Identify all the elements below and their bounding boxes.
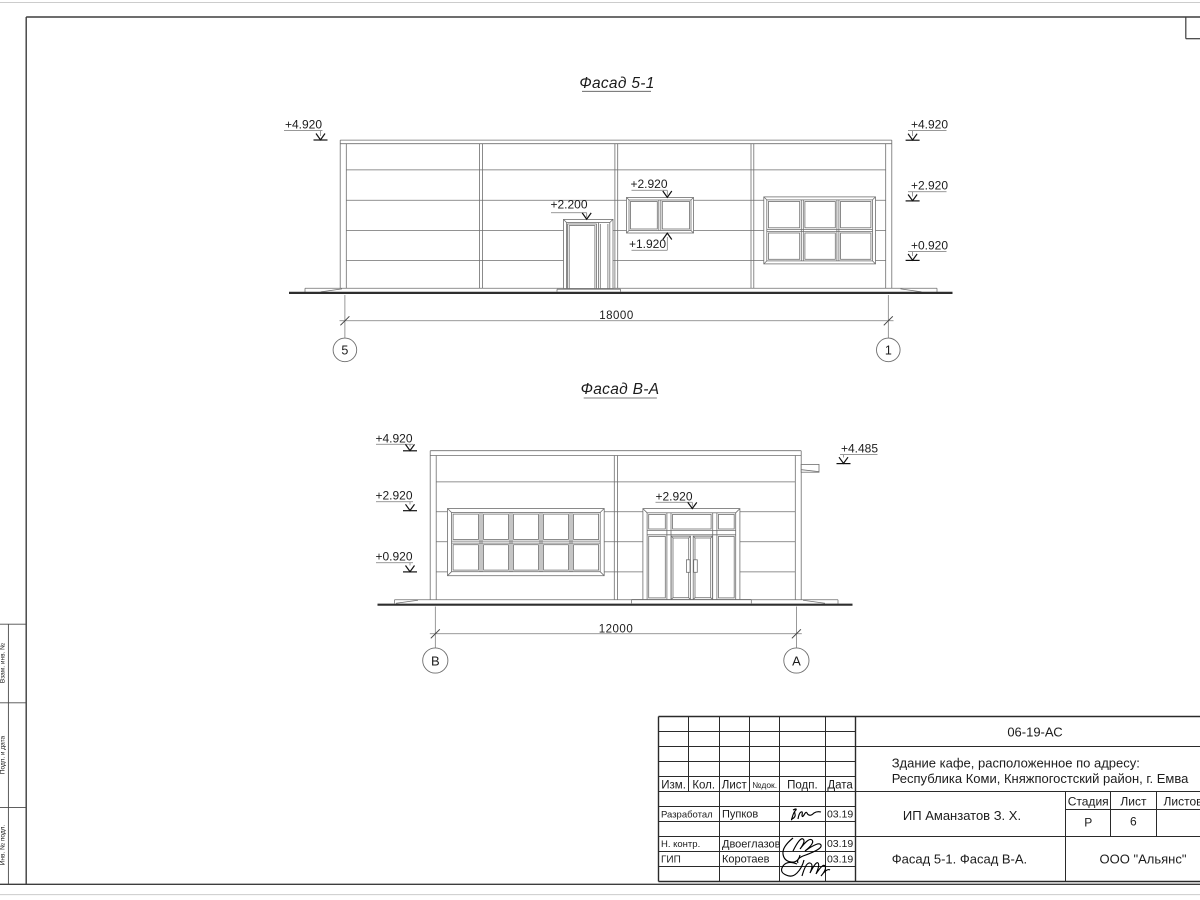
svg-text:5: 5 bbox=[341, 343, 348, 357]
svg-text:12000: 12000 bbox=[599, 623, 633, 635]
svg-text:Подп. и дата: Подп. и дата bbox=[0, 735, 7, 774]
svg-text:18000: 18000 bbox=[599, 310, 633, 322]
svg-text:Двоеглазов: Двоеглазов bbox=[722, 838, 781, 850]
svg-text:03.19: 03.19 bbox=[827, 853, 853, 865]
svg-text:Лист: Лист bbox=[1120, 795, 1147, 809]
svg-text:Дата: Дата bbox=[827, 780, 853, 792]
svg-text:Коротаев: Коротаев bbox=[722, 854, 770, 866]
svg-text:+0.920: +0.920 bbox=[375, 550, 412, 564]
svg-text:Изм.: Изм. bbox=[661, 780, 686, 792]
svg-text:Фасад 5-1. Фасад В-А.: Фасад 5-1. Фасад В-А. bbox=[892, 852, 1027, 867]
svg-text:№док.: №док. bbox=[752, 780, 777, 790]
svg-text:ООО "Альянс": ООО "Альянс" bbox=[1100, 852, 1187, 867]
svg-text:+4.920: +4.920 bbox=[375, 431, 412, 445]
svg-text:Здание кафе, расположенное по: Здание кафе, расположенное по адресу: bbox=[892, 756, 1140, 771]
svg-text:ИП Аманзатов З. Х.: ИП Аманзатов З. Х. bbox=[903, 808, 1021, 823]
svg-text:Фасад 5-1: Фасад 5-1 bbox=[579, 75, 654, 92]
svg-text:Кол.: Кол. bbox=[692, 780, 715, 792]
svg-text:Р: Р bbox=[1084, 816, 1092, 830]
svg-text:+0.920: +0.920 bbox=[911, 239, 948, 253]
svg-text:Взам. инв. №: Взам. инв. № bbox=[0, 643, 7, 683]
svg-text:+2.920: +2.920 bbox=[630, 177, 667, 191]
svg-text:Фасад В-А: Фасад В-А bbox=[581, 381, 660, 398]
svg-text:Пупков: Пупков bbox=[722, 809, 758, 821]
svg-text:Подп.: Подп. bbox=[787, 780, 818, 792]
svg-text:Инв. № подл.: Инв. № подл. bbox=[0, 825, 7, 866]
svg-text:6: 6 bbox=[1130, 815, 1137, 829]
svg-text:Разработал: Разработал bbox=[661, 809, 713, 820]
svg-text:+4.920: +4.920 bbox=[911, 118, 948, 132]
svg-text:1: 1 bbox=[885, 343, 892, 357]
svg-text:03.19: 03.19 bbox=[827, 838, 853, 850]
svg-text:Листов: Листов bbox=[1164, 795, 1200, 809]
svg-text:ГИП: ГИП bbox=[661, 854, 681, 865]
svg-text:Н. контр.: Н. контр. bbox=[661, 839, 700, 850]
svg-text:Республика Коми, Княжпогостски: Республика Коми, Княжпогостский район, г… bbox=[892, 771, 1189, 786]
svg-text:А: А bbox=[792, 653, 801, 668]
svg-text:+1.920: +1.920 bbox=[629, 237, 666, 251]
svg-text:+2.920: +2.920 bbox=[655, 489, 692, 503]
svg-text:+2.920: +2.920 bbox=[911, 179, 948, 193]
svg-text:+4.920: +4.920 bbox=[285, 118, 322, 132]
svg-text:+4.485: +4.485 bbox=[841, 442, 878, 456]
svg-text:Лист: Лист bbox=[722, 780, 748, 792]
svg-text:В: В bbox=[431, 653, 440, 668]
svg-text:+2.200: +2.200 bbox=[550, 198, 587, 212]
svg-text:06-19-АС: 06-19-АС bbox=[1007, 725, 1062, 740]
svg-text:Стадия: Стадия bbox=[1068, 795, 1109, 809]
svg-text:03.19: 03.19 bbox=[827, 808, 853, 820]
svg-text:+2.920: +2.920 bbox=[375, 489, 412, 503]
